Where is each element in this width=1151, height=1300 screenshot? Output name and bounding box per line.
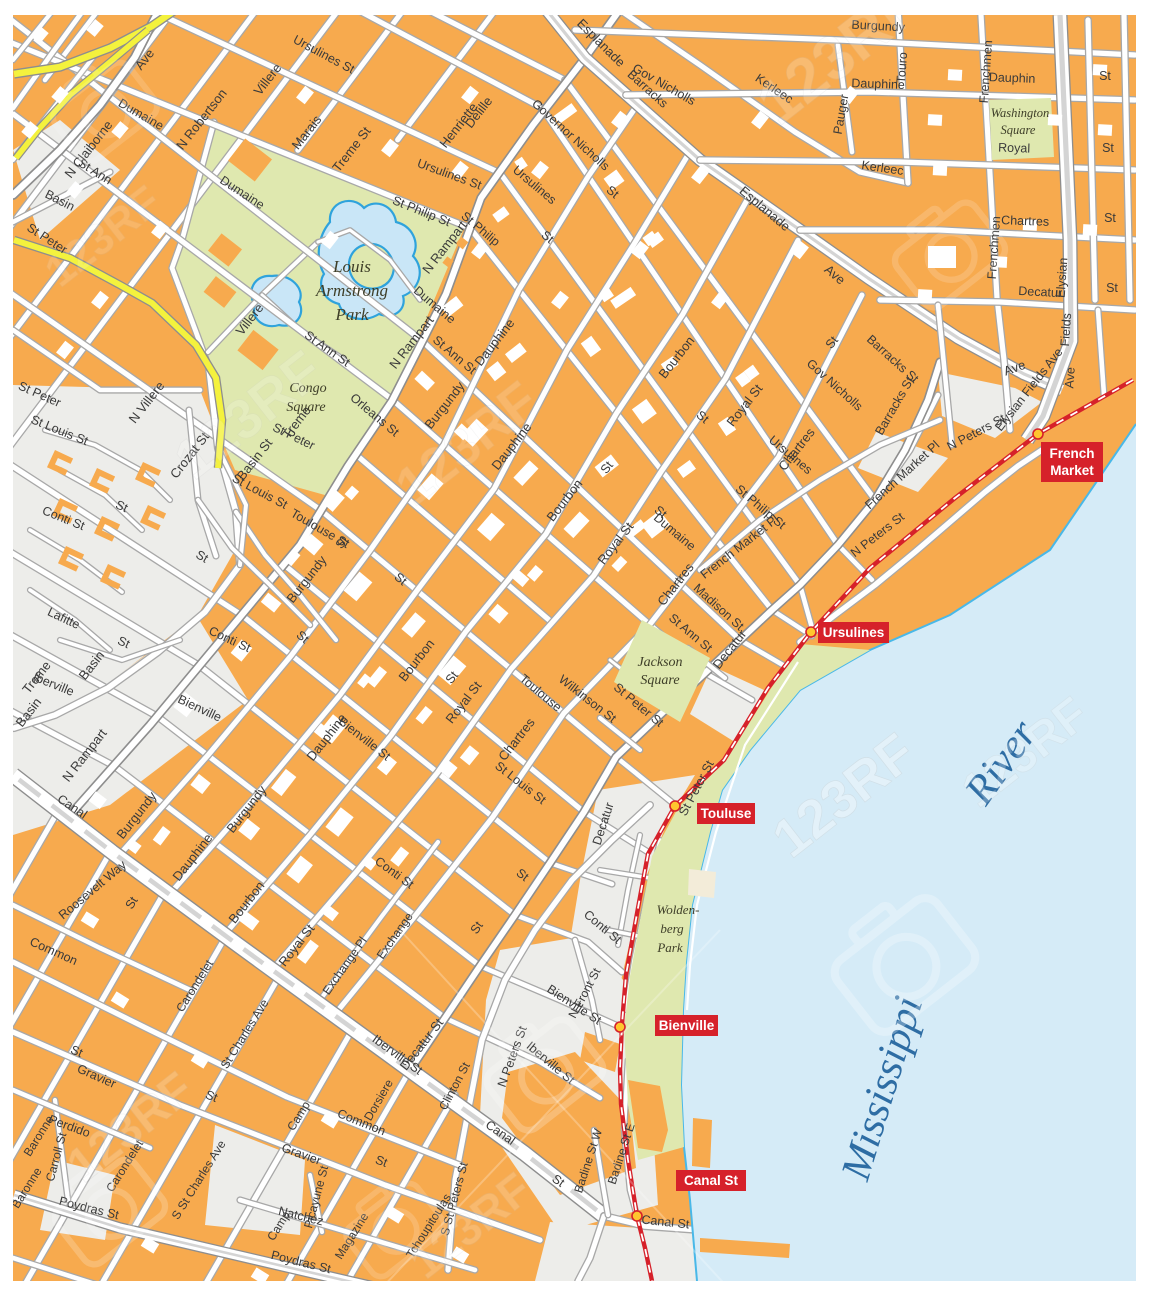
svg-text:Elysian: Elysian	[1054, 257, 1071, 298]
svg-text:Bienville: Bienville	[659, 1018, 715, 1033]
svg-text:Square: Square	[640, 673, 679, 688]
svg-text:St: St	[1104, 211, 1116, 225]
svg-text:Fields: Fields	[1058, 313, 1074, 347]
svg-text:berg: berg	[660, 921, 684, 936]
svg-text:Park: Park	[334, 305, 369, 324]
svg-text:Dauphin: Dauphin	[989, 70, 1036, 86]
svg-text:Park: Park	[656, 940, 683, 955]
svg-text:Square: Square	[1001, 123, 1036, 137]
svg-text:Jackson: Jackson	[637, 655, 682, 670]
svg-text:St: St	[1102, 141, 1114, 155]
svg-text:Ave: Ave	[1062, 367, 1077, 389]
svg-text:Market: Market	[1050, 463, 1094, 478]
svg-text:Washington: Washington	[991, 106, 1050, 120]
svg-text:Armstrong: Armstrong	[315, 281, 388, 300]
svg-text:Canal St: Canal St	[684, 1173, 739, 1188]
svg-text:Royal: Royal	[998, 140, 1030, 155]
svg-text:Touluse: Touluse	[701, 806, 752, 821]
svg-text:St: St	[1106, 281, 1118, 295]
svg-text:Touro: Touro	[894, 52, 910, 84]
svg-text:Chartres: Chartres	[1001, 213, 1049, 229]
svg-text:Wolden-: Wolden-	[657, 902, 700, 917]
svg-text:St: St	[1099, 69, 1111, 83]
svg-text:Ursulines: Ursulines	[823, 625, 885, 640]
svg-text:French: French	[1049, 446, 1094, 461]
svg-text:Louis: Louis	[332, 257, 371, 276]
